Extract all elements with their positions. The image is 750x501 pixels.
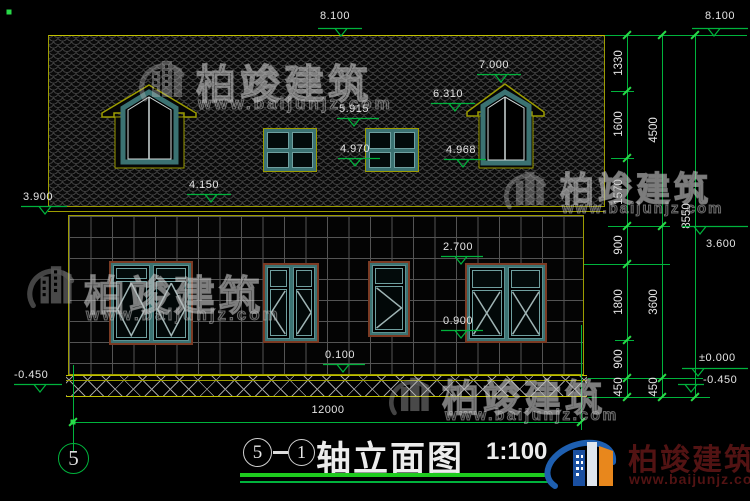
dim-value-vertical: 3600 bbox=[648, 289, 660, 315]
level-symbol bbox=[678, 384, 704, 393]
level-value: 0.900 bbox=[443, 315, 473, 327]
window-sash bbox=[293, 267, 316, 339]
window-2 bbox=[263, 263, 319, 343]
dim-value-vertical: 1600 bbox=[613, 111, 625, 137]
glass-pane bbox=[296, 289, 313, 336]
roof-window-pane bbox=[394, 132, 416, 149]
window-sash bbox=[372, 265, 406, 333]
level-symbol bbox=[444, 159, 486, 168]
level-symbol bbox=[21, 206, 67, 215]
window-sash bbox=[267, 267, 290, 339]
level-symbol bbox=[692, 28, 748, 37]
roof-window-pane bbox=[292, 132, 314, 149]
level-value: 4.970 bbox=[340, 143, 370, 155]
dim-value-vertical: 900 bbox=[613, 235, 625, 254]
transom-pane bbox=[472, 270, 502, 288]
window-sash bbox=[508, 267, 544, 339]
level-value: -0.450 bbox=[14, 369, 48, 381]
level-value: 6.310 bbox=[433, 88, 463, 100]
roof-window-pane bbox=[267, 132, 289, 149]
glass-pane bbox=[511, 290, 541, 336]
level-value: 3.900 bbox=[23, 191, 53, 203]
level-value: -0.450 bbox=[703, 374, 737, 386]
elevation-drawing: 1330160015709001800900450450036004508550… bbox=[0, 0, 750, 501]
dim-value-vertical: 1330 bbox=[613, 50, 625, 76]
transom-pane bbox=[511, 270, 541, 288]
level-value: 4.150 bbox=[189, 179, 219, 191]
roof-window-left bbox=[263, 128, 317, 172]
watermark-logo-icon bbox=[138, 55, 192, 113]
title-axis-to-bubble: 1 bbox=[288, 439, 315, 466]
level-value: 0.100 bbox=[325, 349, 355, 361]
watermark-url: www.baijunjz.com bbox=[562, 200, 723, 217]
level-value: 8.100 bbox=[705, 10, 735, 22]
axis-bubble-label: 5 bbox=[68, 446, 79, 471]
level-symbol bbox=[323, 364, 365, 373]
watermark-logo-icon bbox=[388, 372, 438, 426]
dim-extension-line bbox=[611, 158, 634, 159]
level-symbol bbox=[187, 194, 231, 203]
title-axis-from-bubble: 5 bbox=[243, 438, 272, 467]
title-dash bbox=[273, 451, 288, 454]
level-symbol bbox=[14, 384, 62, 393]
window-3 bbox=[368, 261, 410, 337]
level-value: 3.600 bbox=[706, 238, 736, 250]
watermark-logo-icon bbox=[26, 260, 82, 320]
title-underline-thin bbox=[240, 481, 548, 483]
level-value: ±0.000 bbox=[699, 352, 736, 364]
level-symbol bbox=[318, 28, 362, 37]
axis-intersection-dot bbox=[71, 420, 76, 425]
glass-pane bbox=[375, 286, 403, 330]
brand-logo-icon bbox=[543, 436, 627, 498]
dim-value-vertical: 4500 bbox=[648, 117, 660, 143]
transom-pane bbox=[270, 270, 287, 287]
level-symbol bbox=[431, 103, 475, 112]
level-symbol bbox=[441, 256, 483, 265]
drawing-scale: 1:100 bbox=[486, 438, 547, 466]
level-value: 2.700 bbox=[443, 241, 473, 253]
title-axis-from: 5 bbox=[253, 442, 263, 464]
level-symbol bbox=[682, 226, 748, 235]
watermark-logo-icon bbox=[503, 166, 553, 220]
dim-extension-line bbox=[611, 91, 634, 92]
transom-pane bbox=[375, 268, 403, 284]
axis-intersection-dot bbox=[7, 10, 12, 15]
roof-window-pane bbox=[394, 152, 416, 169]
window-sash bbox=[469, 267, 505, 339]
watermark-url: www.baijunjz.com bbox=[198, 94, 393, 114]
transom-pane bbox=[296, 270, 313, 287]
level-symbol bbox=[477, 74, 521, 83]
level-symbol bbox=[338, 158, 380, 167]
level-symbol bbox=[337, 118, 379, 127]
level-symbol bbox=[441, 330, 483, 339]
dim-chain-line bbox=[73, 365, 74, 452]
watermark-url: www.baijunjz.com bbox=[445, 407, 619, 425]
brand-logo-url: www.baijunjz.com bbox=[629, 471, 750, 487]
level-value: 4.968 bbox=[446, 144, 476, 156]
roof-window-pane bbox=[267, 152, 289, 169]
level-value: 8.100 bbox=[320, 10, 350, 22]
roof-window-pane bbox=[292, 152, 314, 169]
dim-value-vertical: 450 bbox=[648, 377, 660, 396]
dim-value-vertical: 450 bbox=[613, 377, 625, 396]
dim-value-vertical: 900 bbox=[613, 349, 625, 368]
axis-bubble-5: 5 bbox=[58, 443, 89, 474]
title-underline-thick bbox=[240, 473, 548, 477]
title-axis-to: 1 bbox=[297, 442, 306, 463]
dim-value-width: 12000 bbox=[300, 404, 356, 416]
level-value: 7.000 bbox=[479, 59, 509, 71]
dim-value-vertical: 1800 bbox=[613, 289, 625, 315]
roof-window-pane bbox=[369, 132, 391, 149]
watermark-url: www.baijunjz.com bbox=[86, 305, 281, 325]
